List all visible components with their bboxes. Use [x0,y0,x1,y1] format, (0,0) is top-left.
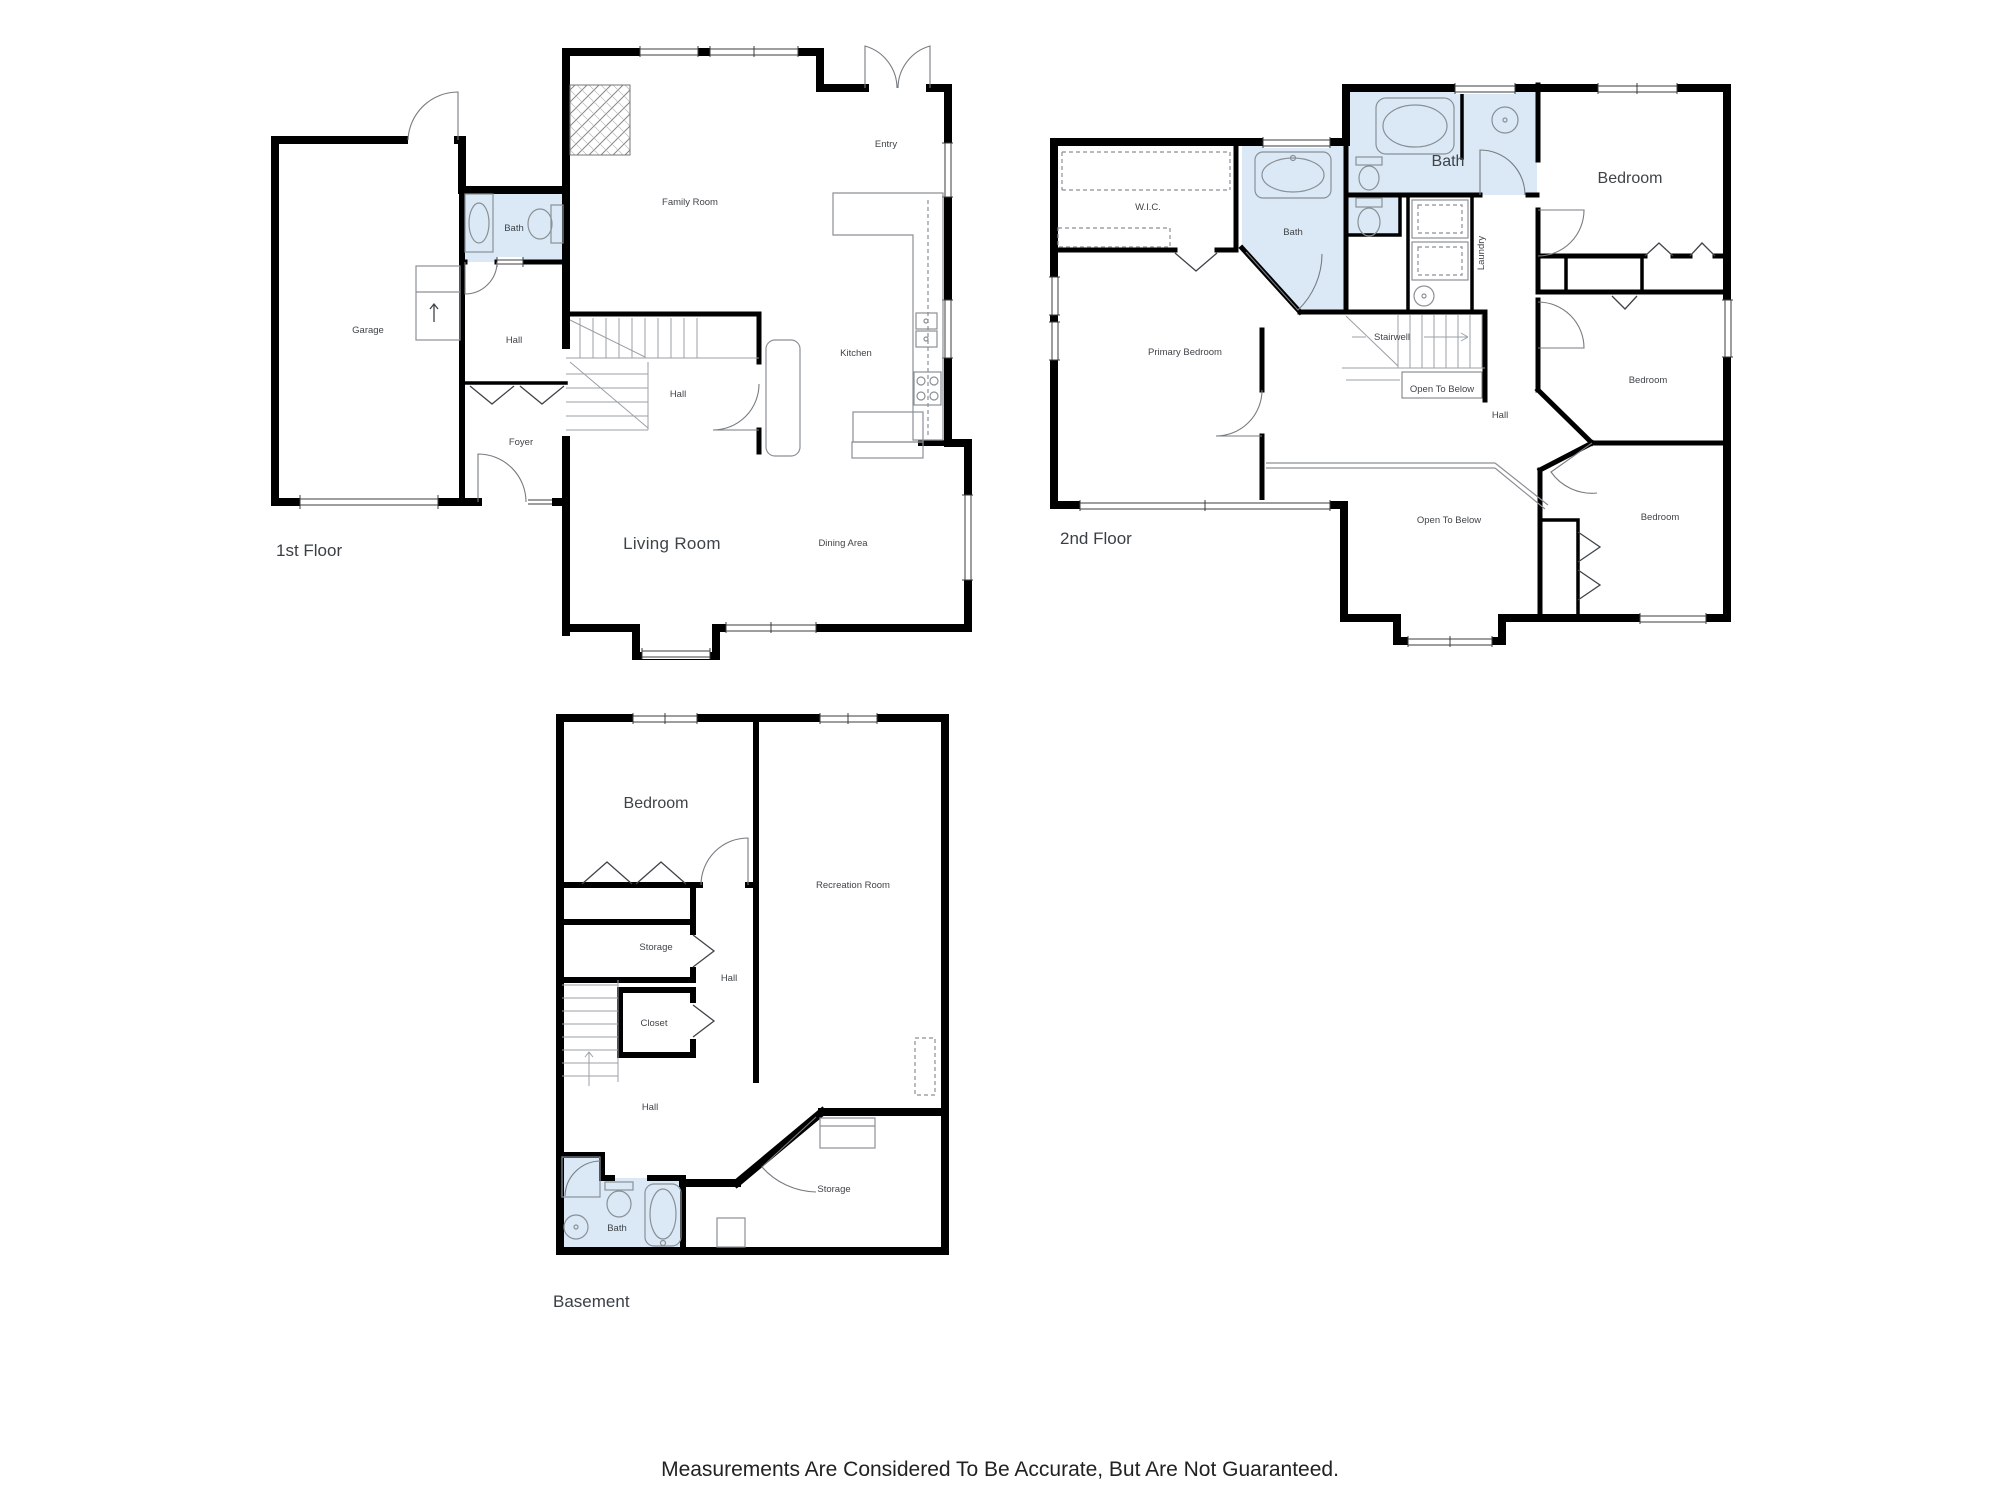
room-label-storage-lower: Storage [817,1184,850,1195]
room-label-basement-bedroom: Bedroom [624,795,689,812]
room-label-bedroom-bottom: Bedroom [1641,512,1680,523]
room-label-foyer: Foyer [509,437,533,448]
room-label-stairwell: Stairwell [1374,332,1410,343]
floor-title-basement: Basement [553,1292,630,1311]
floor-plan-page: Garage Bath Hall Family Room Entry Kitch… [0,0,2000,1500]
room-label-laundry: Laundry [1476,236,1487,271]
room-label-open-to-below-small: Open To Below [1410,384,1474,395]
room-label-garage: Garage [352,325,384,336]
disclaimer-text: Measurements Are Considered To Be Accura… [661,1458,1339,1481]
floor-title-second: 2nd Floor [1060,529,1132,548]
background [0,0,2000,1500]
room-label-living-room: Living Room [623,534,721,553]
room-label-primary-bath: Bath [1283,227,1303,238]
room-label-family-room: Family Room [662,197,718,208]
room-label-hall-lower: Hall [670,389,686,400]
fireplace-hatch [570,85,630,155]
room-label-basement-bath: Bath [607,1223,627,1234]
room-label-closet: Closet [641,1018,668,1029]
room-label-hall-lower-basement: Hall [642,1102,658,1113]
room-label-hall-bath: Bath [1432,153,1465,170]
second-floor-hall-bath-area [1346,88,1537,195]
room-label-wic: W.I.C. [1135,202,1161,213]
floor-plan-image: Garage Bath Hall Family Room Entry Kitch… [0,0,2000,1500]
room-label-entry: Entry [875,139,897,150]
room-label-kitchen: Kitchen [840,348,872,359]
room-label-recreation-room: Recreation Room [816,880,890,891]
room-label-primary-bedroom: Primary Bedroom [1148,347,1222,358]
room-label-dining-area: Dining Area [818,538,868,549]
room-label-storage-upper: Storage [639,942,672,953]
room-label-bath: Bath [504,223,524,234]
room-label-hall-upper: Hall [506,335,522,346]
floor-title-first: 1st Floor [276,541,342,560]
room-label-bedroom-mid: Bedroom [1629,375,1668,386]
room-label-hall-mid: Hall [721,973,737,984]
room-label-open-to-below-large: Open To Below [1417,515,1481,526]
room-label-bedroom-top: Bedroom [1598,170,1663,187]
room-label-hall-second: Hall [1492,410,1508,421]
